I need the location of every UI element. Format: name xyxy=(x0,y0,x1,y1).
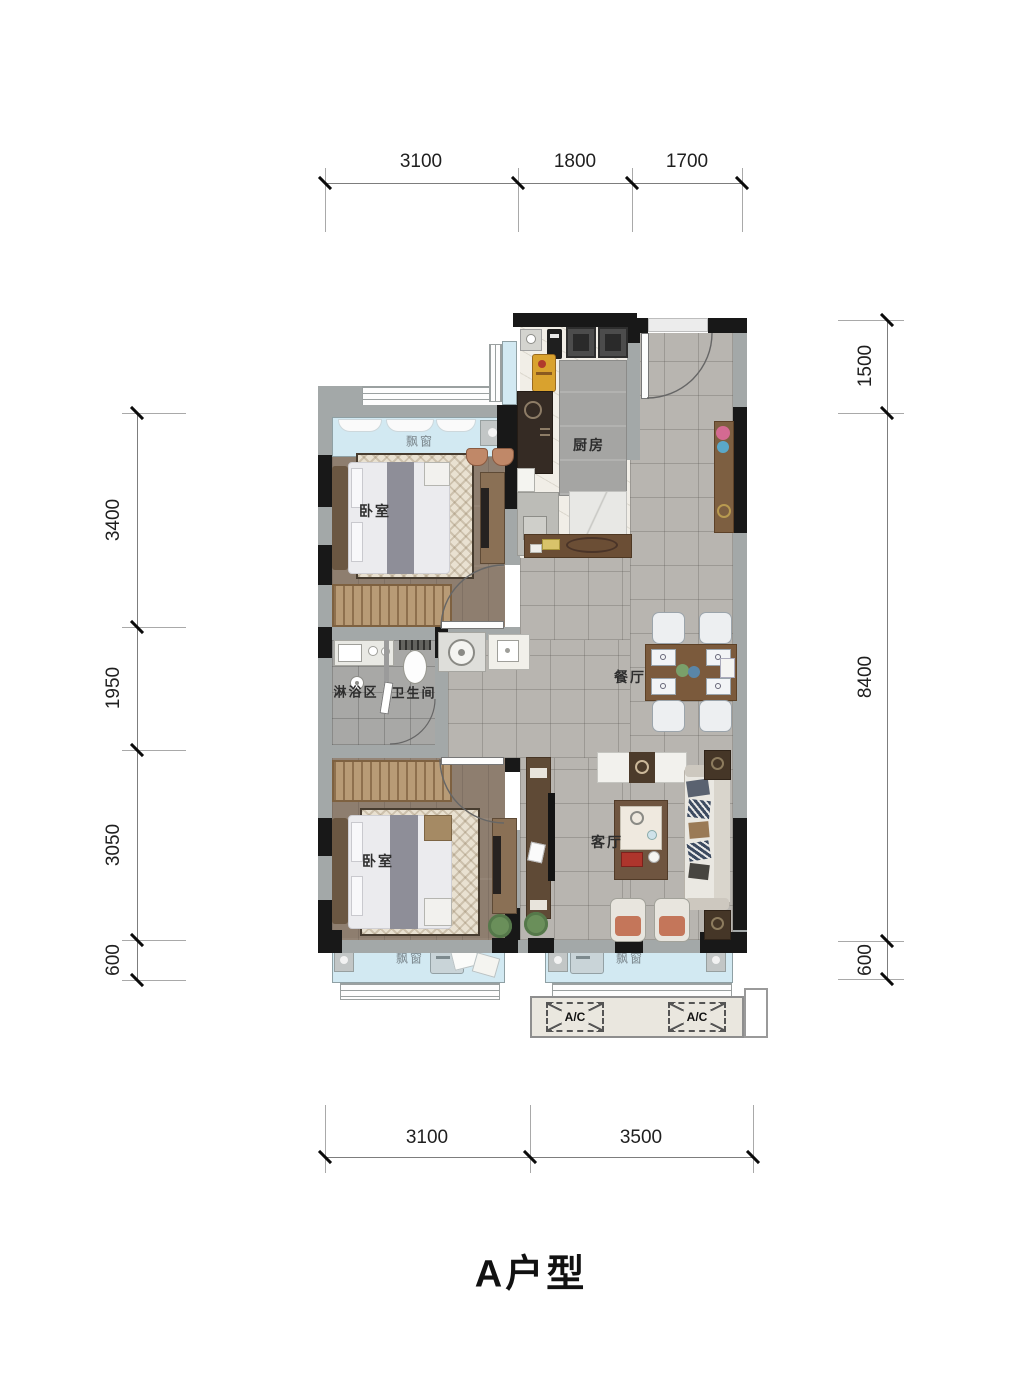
plan-title: A户型 xyxy=(475,1243,587,1298)
floorplan-canvas: 3100 1800 1700 3100 3500 3400 1950 3050 … xyxy=(0,0,1023,1400)
door-arcs xyxy=(0,0,1023,1400)
